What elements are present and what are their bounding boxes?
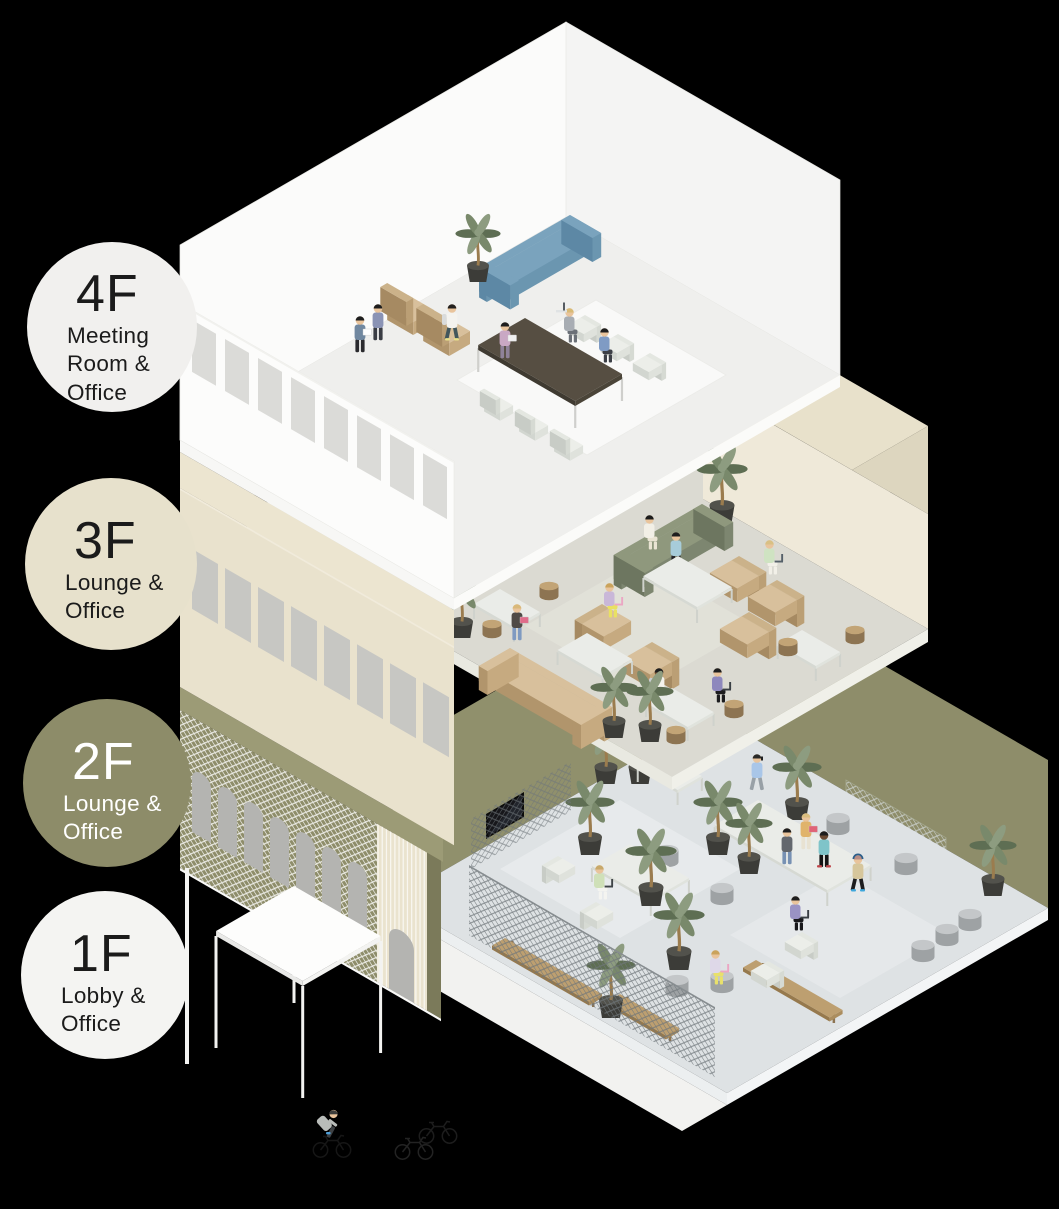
stool [959,909,982,931]
bicycle [395,1138,432,1160]
isometric-building [0,0,1059,1209]
stool [827,813,850,835]
bicycle [313,1136,350,1158]
column [185,868,189,1064]
wooden-stool [846,626,865,645]
wooden-stool [779,638,798,657]
stool [895,853,918,875]
street-level-bicycles [313,1110,456,1159]
stool [912,940,935,962]
stool [936,924,959,946]
helmet [329,1110,337,1114]
wooden-stool [483,620,502,639]
bicycle [419,1122,456,1144]
stool [711,883,734,905]
wooden-stool [540,582,559,601]
cyclist [316,1110,338,1138]
building-cutaway-illustration: 4FMeetingRoom &Office3FLounge &Office2FL… [0,0,1059,1209]
wooden-stool [725,700,744,719]
wooden-stool [667,726,686,745]
